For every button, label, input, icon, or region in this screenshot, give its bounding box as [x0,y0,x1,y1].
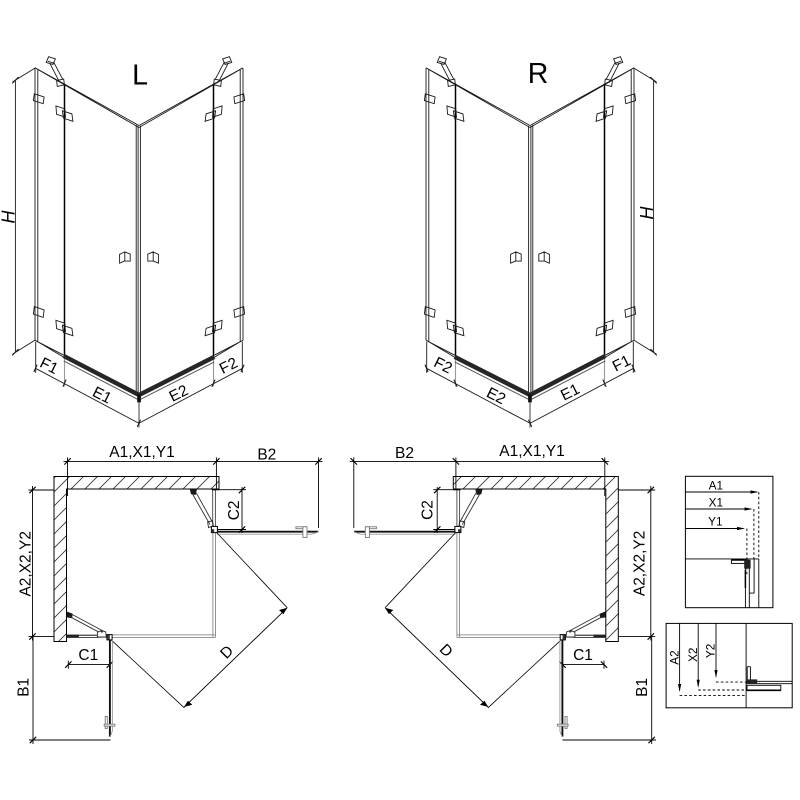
svg-text:A2,X2,Y2: A2,X2,Y2 [631,531,648,597]
svg-text:L: L [132,60,148,92]
svg-text:X2: X2 [686,648,700,662]
svg-text:B2: B2 [257,447,276,464]
svg-text:A1,X1,Y1: A1,X1,Y1 [499,443,565,460]
svg-text:X1: X1 [709,495,723,509]
svg-text:C1: C1 [573,647,593,664]
svg-text:C2: C2 [226,500,243,520]
svg-text:B1: B1 [15,678,32,697]
svg-text:A1: A1 [709,478,723,492]
svg-text:Y2: Y2 [704,644,718,658]
svg-text:Y1: Y1 [708,515,722,529]
svg-text:R: R [528,58,549,90]
svg-text:B2: B2 [395,445,414,462]
svg-text:H: H [0,210,18,224]
svg-text:H: H [637,206,657,220]
svg-text:A2: A2 [668,650,682,664]
svg-text:A1,X1,Y1: A1,X1,Y1 [109,444,175,461]
svg-text:C2: C2 [420,500,437,520]
svg-text:A2,X2,Y2: A2,X2,Y2 [17,531,34,597]
svg-text:B1: B1 [634,678,651,697]
svg-text:C1: C1 [78,647,98,664]
